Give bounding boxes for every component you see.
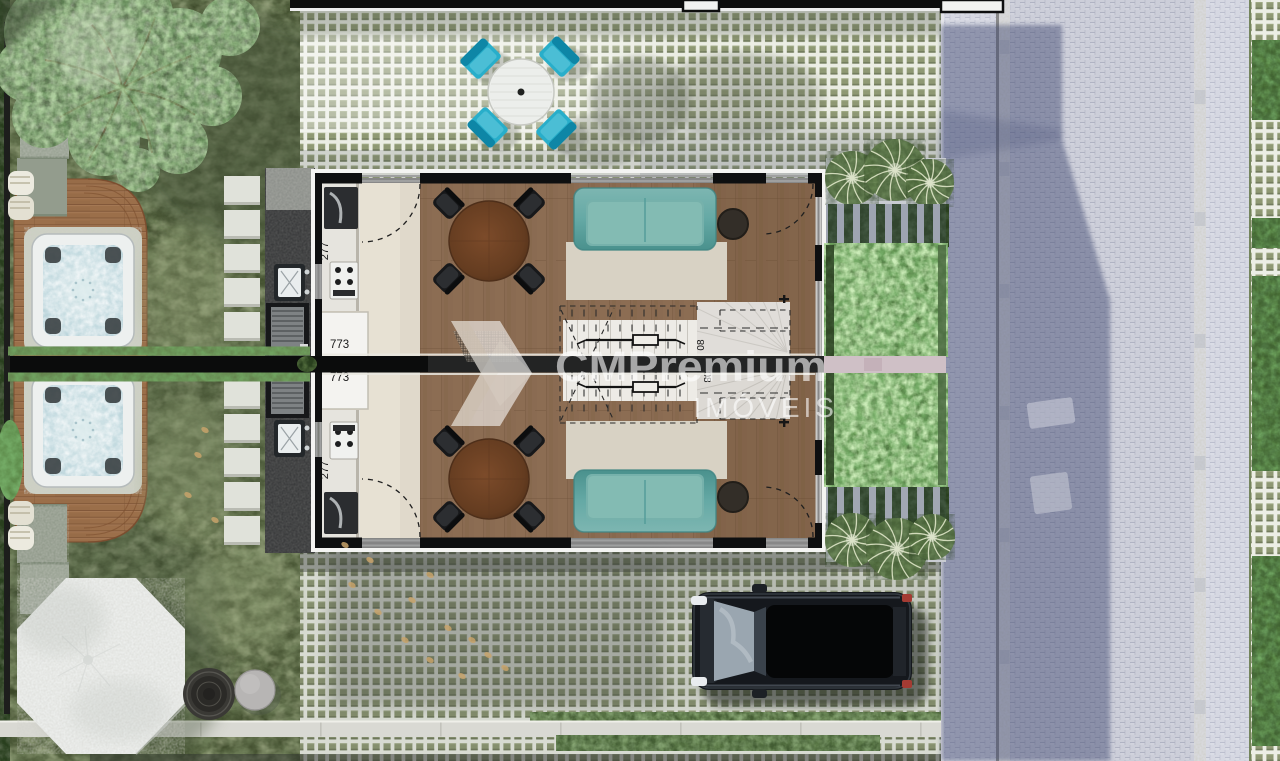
svg-text:CMPremium: CMPremium [555,343,827,391]
svg-text:IMÓVEIS: IMÓVEIS [693,392,838,423]
svg-text:773: 773 [330,339,349,351]
